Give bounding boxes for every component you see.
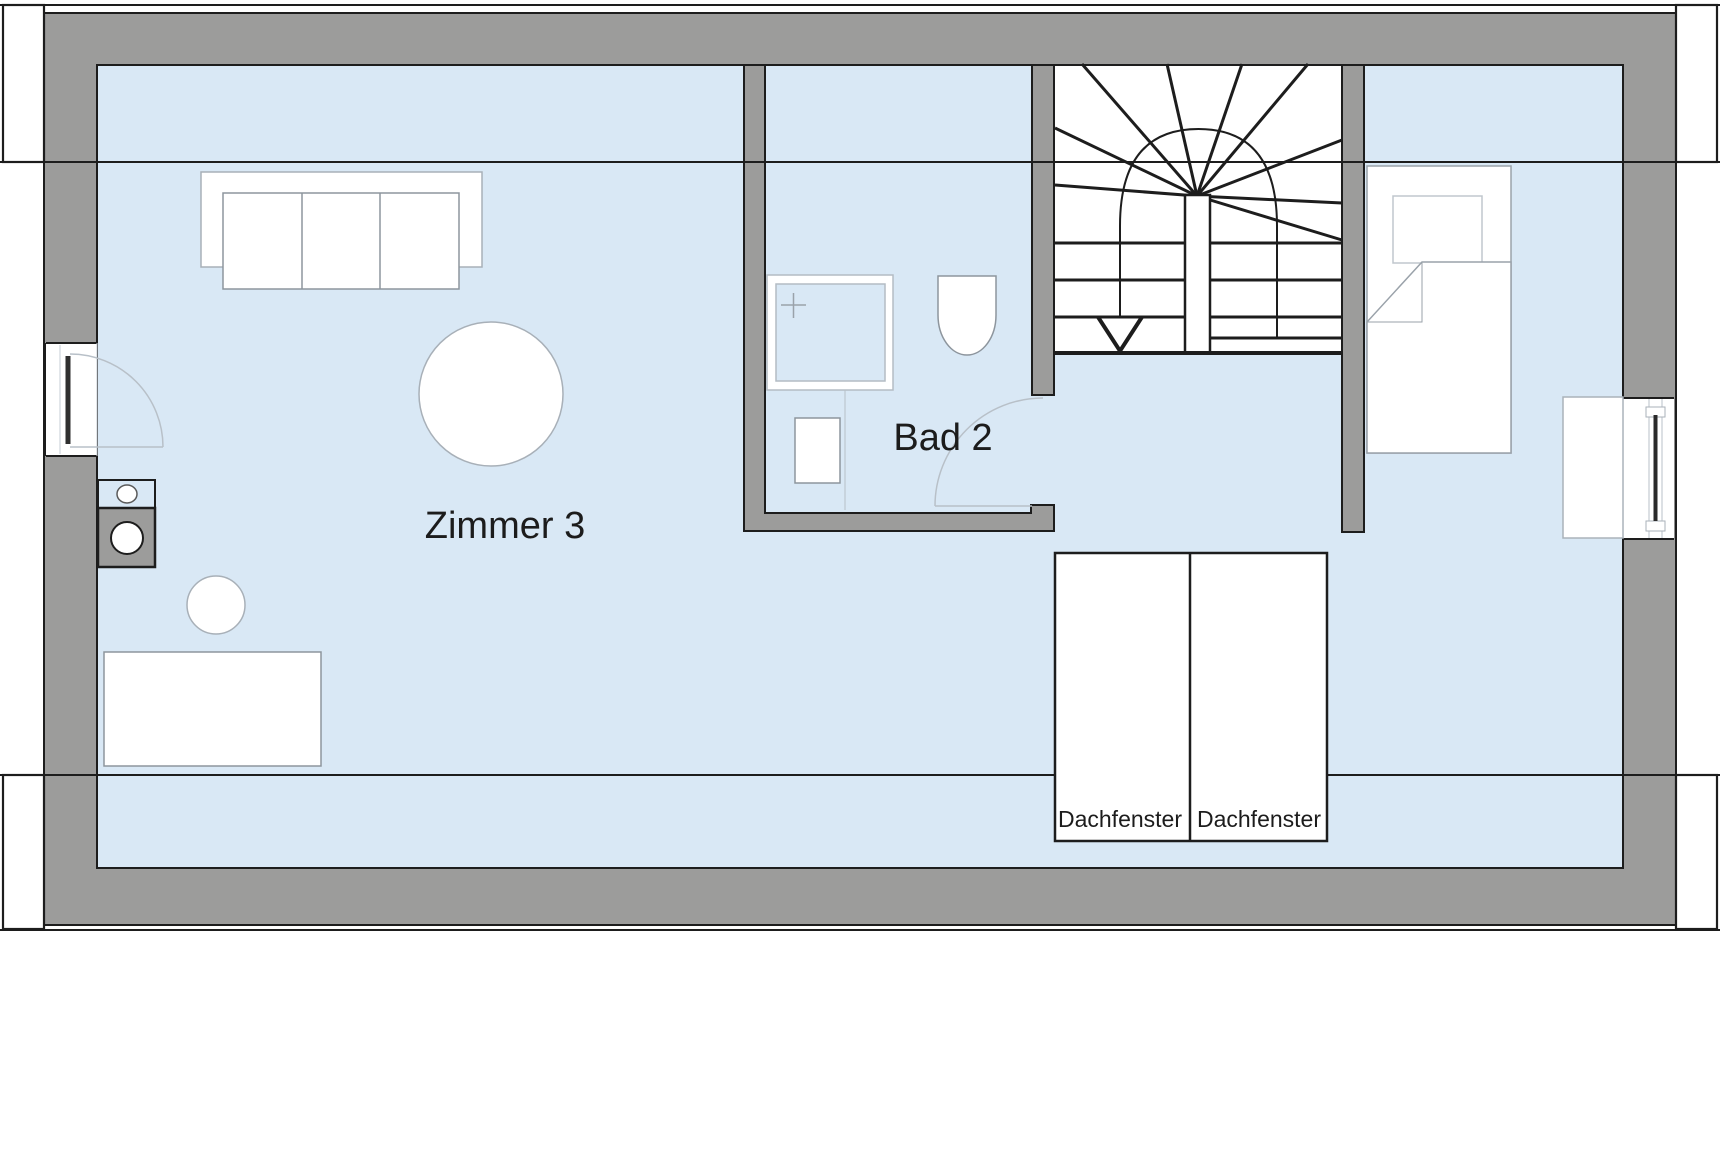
room-label-zimmer3: Zimmer 3	[425, 505, 585, 547]
dormer-icon-top-left	[3, 5, 44, 162]
window-sill	[1563, 397, 1623, 538]
shower-icon	[767, 275, 893, 390]
appliance-knob	[117, 485, 137, 503]
desk-icon	[104, 652, 321, 766]
bathroom-stair-wall	[1032, 65, 1054, 395]
round-table-icon	[419, 322, 563, 466]
toilet-icon	[938, 276, 996, 355]
bed-pillow	[1393, 196, 1482, 263]
room-label-bad2: Bad 2	[893, 417, 992, 459]
sofa-icon	[201, 172, 482, 289]
washbasin-icon	[795, 418, 840, 483]
stair-newel	[1185, 195, 1210, 353]
floor-plan-drawing: Dachfenster Dachfenster Zimmer 3 Bad 2	[0, 0, 1720, 1150]
stair-bedroom-wall	[1342, 65, 1364, 532]
washing-machine-door	[111, 522, 143, 554]
stool-icon	[187, 576, 245, 634]
roof-window-label-left: Dachfenster	[1058, 806, 1182, 832]
floor-plan-canvas: Dachfenster Dachfenster Zimmer 3 Bad 2	[0, 0, 1720, 1150]
right-wall-window	[1563, 397, 1676, 539]
shower-basin	[776, 284, 885, 381]
dormer-icon-bottom-left	[3, 775, 44, 929]
roof-window-label-right: Dachfenster	[1197, 806, 1321, 832]
dormer-icon-top-right	[1676, 5, 1717, 162]
window-frame-cap	[1646, 521, 1665, 531]
sofa-seat	[223, 193, 459, 289]
roof-windows: Dachfenster Dachfenster	[1055, 553, 1327, 841]
bed-icon	[1367, 166, 1511, 453]
dormer-icon-bottom-right	[1676, 775, 1717, 929]
door-opening	[46, 343, 98, 456]
